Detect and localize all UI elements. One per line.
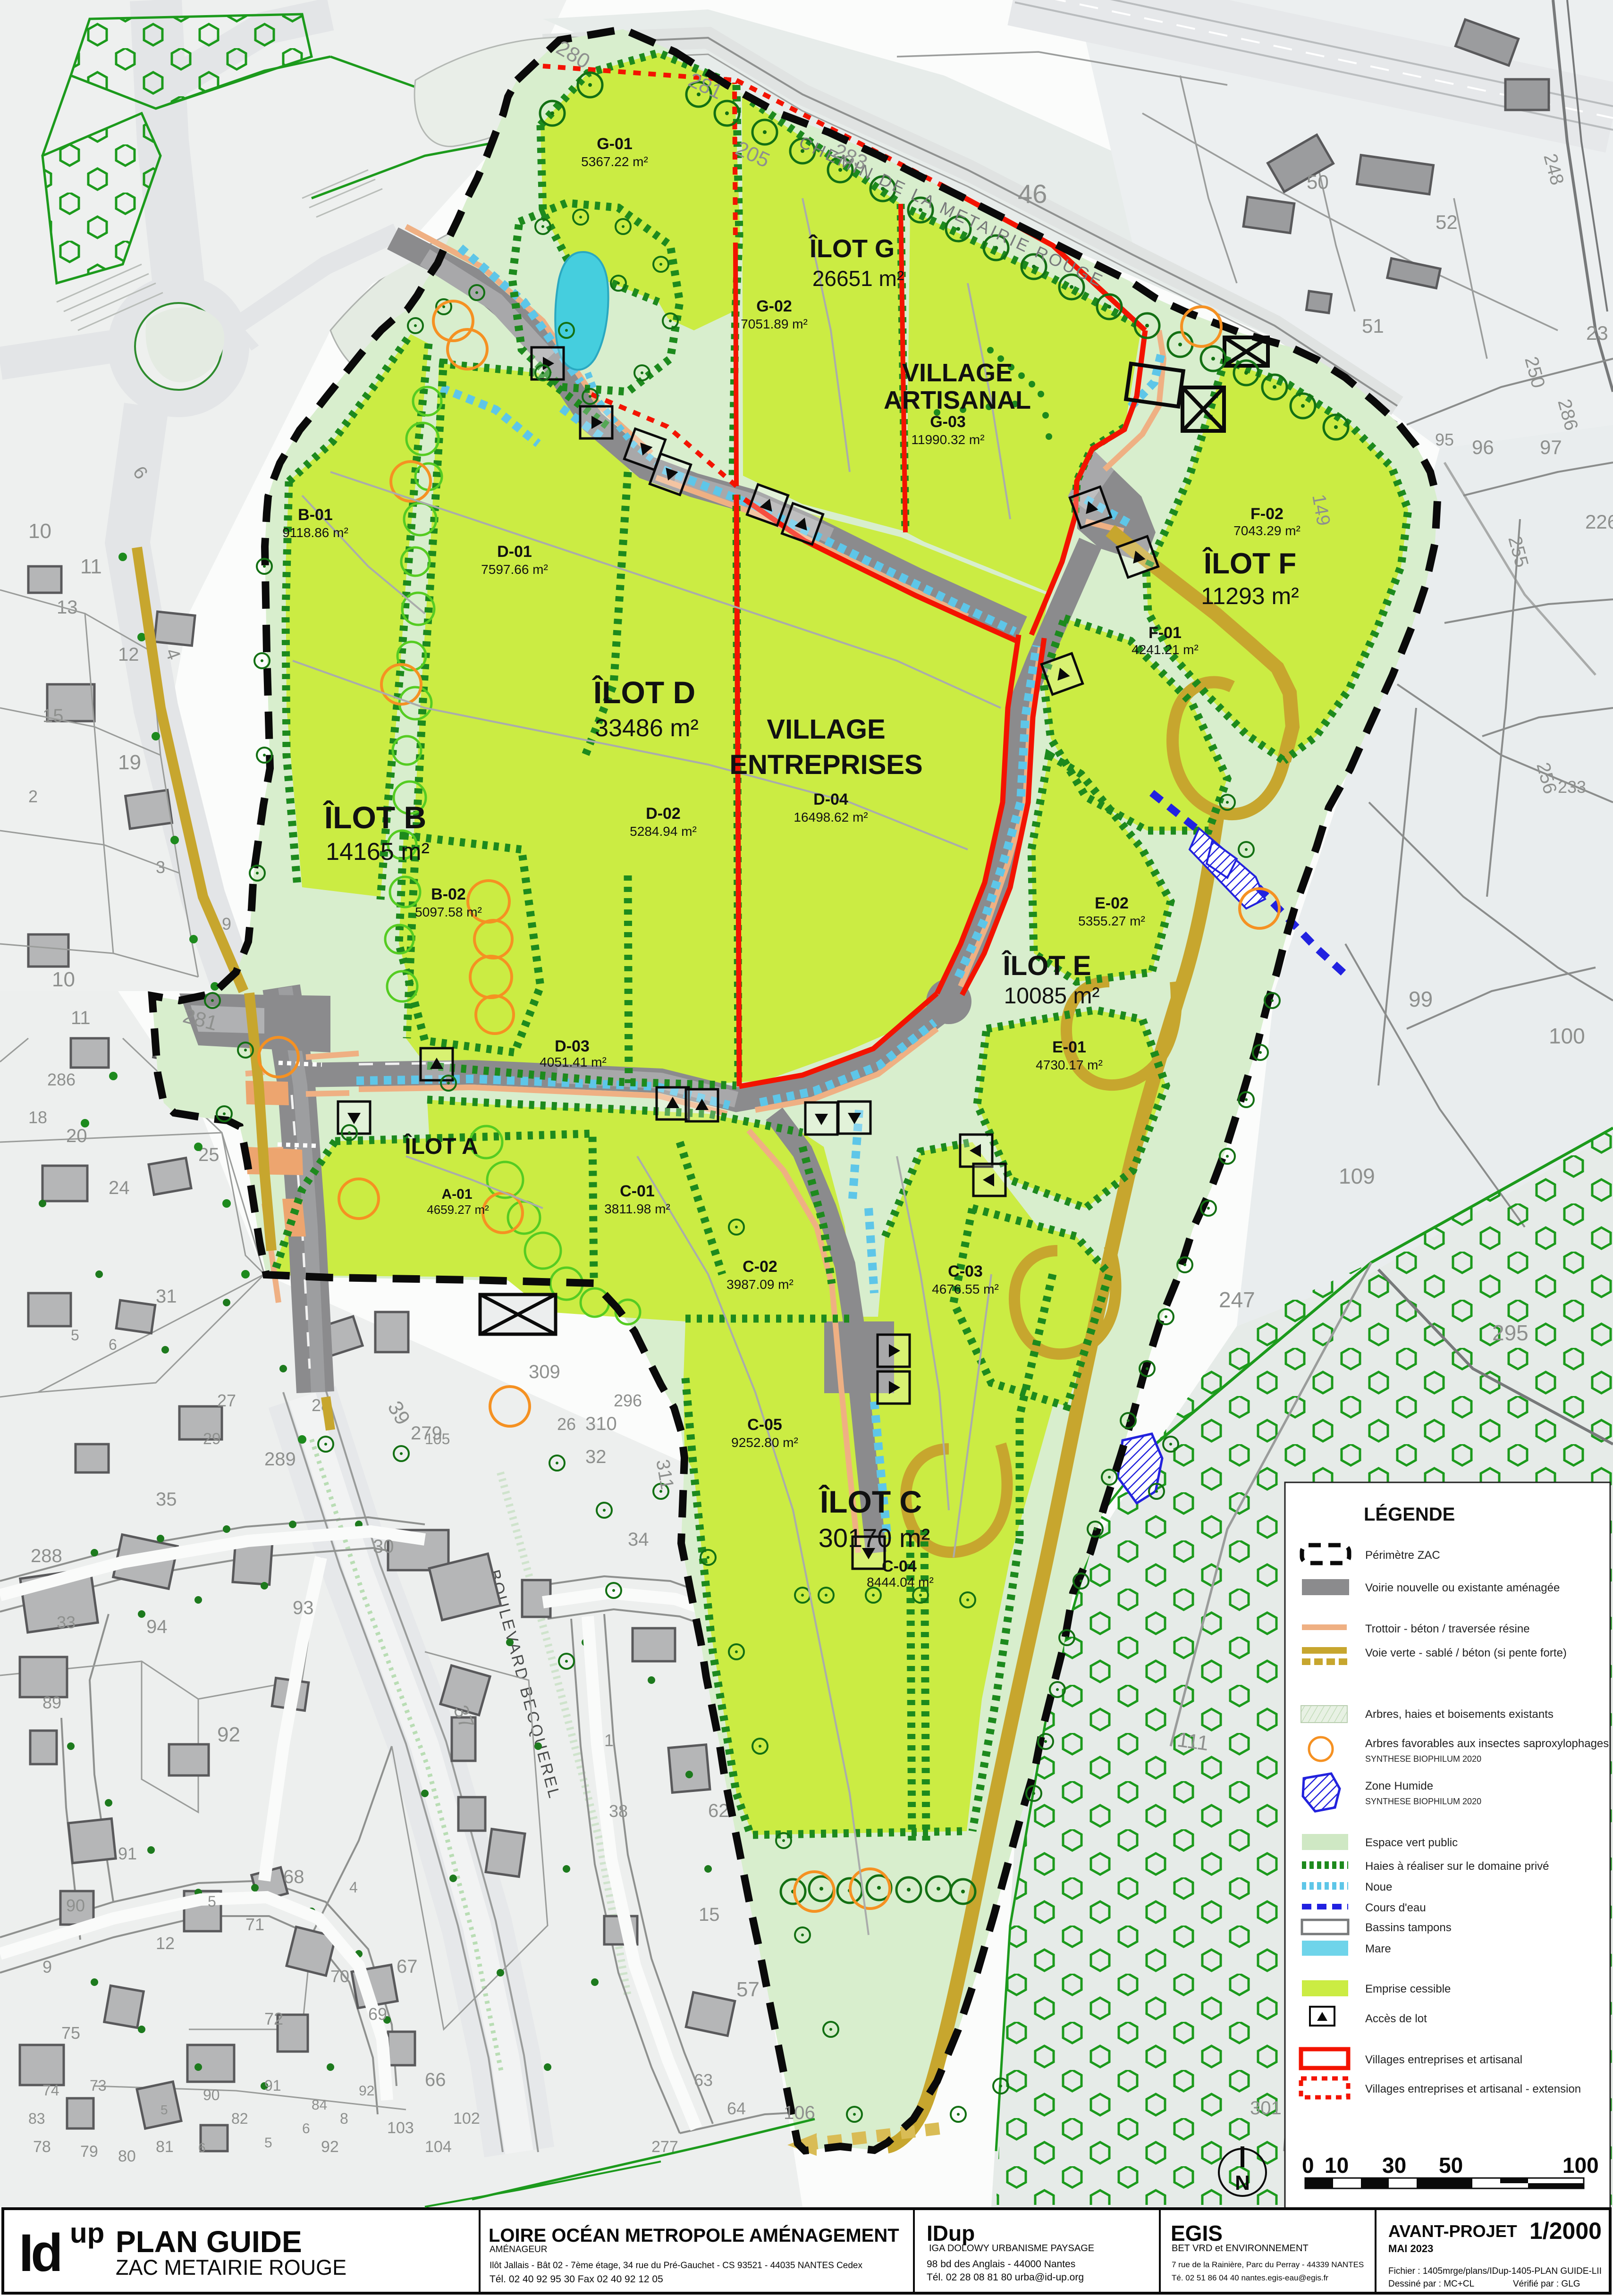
svg-text:PLAN GUIDE: PLAN GUIDE	[116, 2225, 302, 2259]
svg-text:33486 m²: 33486 m²	[595, 715, 699, 742]
svg-text:46: 46	[1018, 179, 1047, 209]
svg-text:9: 9	[42, 1957, 52, 1976]
svg-text:10: 10	[52, 968, 75, 991]
svg-text:288: 288	[31, 1546, 62, 1566]
svg-text:81: 81	[156, 2138, 174, 2156]
svg-text:D-03: D-03	[555, 1037, 590, 1055]
svg-text:51: 51	[1362, 315, 1384, 337]
svg-text:279: 279	[411, 1423, 442, 1444]
svg-text:289: 289	[264, 1449, 296, 1470]
svg-text:VILLAGE: VILLAGE	[767, 714, 885, 745]
svg-text:80: 80	[118, 2147, 136, 2165]
svg-text:C-02: C-02	[743, 1258, 777, 1276]
svg-text:26651 m²: 26651 m²	[812, 266, 904, 291]
svg-text:13: 13	[57, 597, 78, 618]
svg-text:68: 68	[283, 1867, 304, 1887]
svg-text:Voirie nouvelle ou existante a: Voirie nouvelle ou existante aménagée	[1365, 1581, 1560, 1594]
svg-text:Ilôt Jallais - Bât 02 - 7ème é: Ilôt Jallais - Bât 02 - 7ème étage, 34 r…	[490, 2261, 862, 2271]
svg-text:57: 57	[736, 1978, 760, 2001]
svg-text:5: 5	[160, 2103, 168, 2117]
svg-text:12: 12	[118, 644, 139, 665]
svg-text:301: 301	[1250, 2098, 1282, 2119]
svg-text:ENTREPRISES: ENTREPRISES	[729, 749, 922, 780]
svg-text:F-02: F-02	[1250, 505, 1284, 523]
svg-text:99: 99	[1409, 987, 1433, 1011]
svg-text:5367.22 m²: 5367.22 m²	[581, 154, 648, 169]
svg-text:5284.94 m²: 5284.94 m²	[630, 824, 697, 839]
svg-text:10: 10	[28, 520, 51, 543]
svg-text:E-02: E-02	[1095, 894, 1129, 912]
svg-text:14165 m²: 14165 m²	[326, 838, 430, 866]
svg-text:30: 30	[373, 1536, 394, 1557]
svg-text:104: 104	[425, 2138, 452, 2156]
svg-text:100: 100	[1549, 1024, 1585, 1048]
svg-text:ÎLOT G: ÎLOT G	[808, 234, 895, 263]
svg-text:52: 52	[1436, 211, 1458, 233]
svg-text:ÎLOT C: ÎLOT C	[819, 1484, 922, 1519]
svg-text:Accès de lot: Accès de lot	[1365, 2012, 1427, 2025]
svg-text:34: 34	[628, 1529, 649, 1550]
svg-text:70: 70	[330, 1967, 349, 1986]
svg-text:AMÉNAGEUR: AMÉNAGEUR	[490, 2245, 547, 2254]
svg-text:G-03: G-03	[930, 413, 966, 431]
svg-text:103: 103	[387, 2119, 414, 2137]
svg-text:5: 5	[264, 2135, 272, 2151]
svg-text:12: 12	[156, 1934, 175, 1953]
svg-text:Arbres, haies et boisements ex: Arbres, haies et boisements existants	[1365, 1708, 1554, 1721]
svg-text:30: 30	[1382, 2153, 1406, 2178]
svg-text:27: 27	[217, 1391, 236, 1410]
svg-text:MAI 2023: MAI 2023	[1388, 2243, 1433, 2254]
svg-text:G-01: G-01	[597, 135, 633, 153]
svg-text:D-04: D-04	[813, 791, 848, 808]
svg-text:109: 109	[1339, 1164, 1375, 1188]
svg-text:N: N	[1235, 2171, 1250, 2195]
svg-text:Zone Humide: Zone Humide	[1365, 1780, 1433, 1792]
svg-text:8444.04 m²: 8444.04 m²	[867, 1575, 934, 1590]
svg-text:ARTISANAL: ARTISANAL	[884, 386, 1031, 414]
svg-text:233: 233	[1558, 777, 1586, 797]
svg-text:78: 78	[33, 2138, 51, 2156]
svg-text:Noue: Noue	[1365, 1881, 1392, 1893]
svg-text:9118.86 m²: 9118.86 m²	[282, 525, 348, 540]
svg-text:111: 111	[1176, 1728, 1210, 1755]
svg-text:BET VRD et ENVIRONNEMENT: BET VRD et ENVIRONNEMENT	[1172, 2243, 1309, 2254]
svg-text:ZAC METAIRIE ROUGE: ZAC METAIRIE ROUGE	[116, 2255, 346, 2279]
svg-text:Tél. 02 28 08 81 80 urba@id: Tél. 02 28 08 81 80 urba@id-up.org	[927, 2272, 1084, 2283]
svg-text:5355.27 m²: 5355.27 m²	[1078, 914, 1145, 928]
svg-text:IDup: IDup	[927, 2221, 975, 2246]
svg-text:247: 247	[1219, 1287, 1255, 1312]
svg-text:4659.27 m²: 4659.27 m²	[427, 1203, 489, 1217]
svg-text:Villages entreprises et artisa: Villages entreprises et artisanal - exte…	[1365, 2083, 1581, 2095]
svg-text:9252.80 m²: 9252.80 m²	[731, 1435, 798, 1450]
svg-text:38: 38	[609, 1801, 628, 1821]
svg-text:7043.29 m²: 7043.29 m²	[1233, 523, 1301, 538]
svg-text:1: 1	[604, 1731, 614, 1750]
svg-text:Id: Id	[19, 2223, 60, 2282]
svg-text:90: 90	[203, 2086, 220, 2103]
svg-text:11293 m²: 11293 m²	[1201, 583, 1299, 609]
svg-text:Cours d'eau: Cours d'eau	[1365, 1901, 1426, 1914]
svg-text:69: 69	[368, 2004, 387, 2024]
svg-text:11: 11	[71, 1008, 91, 1028]
svg-text:SYNTHESE BIOPHILUM 2020: SYNTHESE BIOPHILUM 2020	[1365, 1797, 1481, 1806]
svg-text:Voie verte - sablé / béton (si: Voie verte - sablé / béton (si pente for…	[1365, 1647, 1567, 1659]
svg-text:Villages entreprises et artisa: Villages entreprises et artisanal	[1365, 2053, 1522, 2066]
svg-text:95: 95	[1435, 430, 1454, 449]
svg-text:4676.55 m²: 4676.55 m²	[932, 1282, 999, 1296]
svg-text:ÎLOT F: ÎLOT F	[1202, 547, 1296, 580]
svg-text:Haies à réaliser sur le domain: Haies à réaliser sur le domaine privé	[1365, 1860, 1549, 1873]
svg-text:5097.58 m²: 5097.58 m²	[415, 905, 482, 919]
svg-text:19: 19	[118, 751, 141, 774]
svg-text:92: 92	[217, 1723, 240, 1746]
svg-text:23: 23	[1586, 322, 1608, 344]
svg-text:Bassins tampons: Bassins tampons	[1365, 1921, 1452, 1934]
svg-text:Périmètre ZAC: Périmètre ZAC	[1365, 1549, 1440, 1562]
svg-text:286: 286	[47, 1070, 76, 1089]
svg-text:3811.98 m²: 3811.98 m²	[604, 1202, 670, 1216]
svg-text:7051.89 m²: 7051.89 m²	[741, 317, 808, 331]
svg-text:LÉGENDE: LÉGENDE	[1364, 1504, 1455, 1525]
svg-text:Tél. 02 40 92 95 30 Fax 02: Tél. 02 40 92 95 30 Fax 02 40 92 12 05	[490, 2274, 663, 2285]
svg-text:Emprise cessible: Emprise cessible	[1365, 1983, 1451, 1995]
svg-text:9: 9	[222, 914, 231, 934]
svg-text:Dessiné par : MC+CL: Dessiné par : MC+CL	[1388, 2279, 1474, 2289]
svg-text:ÎLOT A: ÎLOT A	[404, 1133, 478, 1159]
svg-text:C-05: C-05	[747, 1416, 782, 1434]
svg-text:310: 310	[585, 1413, 617, 1434]
svg-text:15: 15	[699, 1904, 720, 1925]
svg-text:75: 75	[61, 2023, 80, 2043]
svg-text:B-02: B-02	[431, 885, 466, 903]
svg-text:79: 79	[80, 2143, 98, 2161]
svg-text:up: up	[70, 2217, 104, 2249]
svg-text:D-01: D-01	[497, 543, 532, 561]
svg-text:C-01: C-01	[620, 1182, 655, 1200]
svg-text:66: 66	[425, 2069, 446, 2090]
svg-text:A-01: A-01	[441, 1186, 472, 1202]
svg-text:91: 91	[264, 2077, 281, 2094]
svg-text:84: 84	[312, 2097, 327, 2113]
svg-text:102: 102	[453, 2110, 480, 2128]
svg-text:32: 32	[585, 1447, 607, 1467]
svg-text:64: 64	[727, 2099, 746, 2118]
svg-text:4051.41 m²: 4051.41 m²	[540, 1055, 607, 1069]
svg-text:8: 8	[340, 2110, 348, 2127]
svg-text:ÎLOT E: ÎLOT E	[1002, 950, 1091, 981]
svg-text:10: 10	[1325, 2153, 1349, 2178]
svg-text:4241.21 m²: 4241.21 m²	[1132, 642, 1199, 657]
svg-text:16498.62 m²: 16498.62 m²	[794, 810, 868, 824]
svg-text:D-02: D-02	[646, 805, 681, 823]
svg-text:0: 0	[1302, 2153, 1314, 2178]
svg-text:295: 295	[1492, 1320, 1529, 1345]
svg-text:5: 5	[208, 1893, 216, 1910]
svg-text:309: 309	[529, 1362, 560, 1382]
svg-text:31: 31	[156, 1286, 177, 1307]
svg-text:4: 4	[349, 1879, 358, 1896]
svg-text:15: 15	[42, 706, 64, 726]
svg-text:63: 63	[694, 2070, 713, 2090]
svg-text:5: 5	[71, 1327, 79, 1344]
svg-text:EGIS: EGIS	[1171, 2221, 1223, 2246]
svg-text:90: 90	[66, 1896, 85, 1915]
svg-text:50: 50	[1307, 171, 1329, 193]
svg-text:Mare: Mare	[1365, 1943, 1391, 1955]
svg-text:74: 74	[42, 2082, 59, 2099]
svg-text:30170 m²: 30170 m²	[819, 1523, 930, 1553]
svg-text:20: 20	[66, 1126, 87, 1146]
svg-text:11990.32 m²: 11990.32 m²	[911, 432, 984, 447]
svg-text:6: 6	[109, 1336, 117, 1353]
svg-text:50: 50	[1439, 2153, 1463, 2178]
svg-text:72: 72	[264, 2009, 283, 2028]
svg-text:62: 62	[708, 1800, 729, 1821]
svg-text:96: 96	[1472, 436, 1494, 458]
svg-text:VILLAGE: VILLAGE	[902, 359, 1013, 387]
svg-text:93: 93	[293, 1598, 314, 1618]
svg-text:C-03: C-03	[948, 1262, 983, 1280]
svg-text:67: 67	[397, 1956, 418, 1977]
svg-text:6: 6	[302, 2121, 310, 2136]
svg-text:Arbres favorables aux insectes: Arbres favorables aux insectes saproxylo…	[1365, 1737, 1609, 1750]
svg-text:AVANT-PROJET: AVANT-PROJET	[1388, 2221, 1517, 2241]
svg-text:98 bd des Anglais - 44000 Nant: 98 bd des Anglais - 44000 Nantes	[927, 2259, 1075, 2270]
svg-text:33: 33	[57, 1613, 76, 1632]
svg-text:Fichier : 1405mrge/plans/IDup-: Fichier : 1405mrge/plans/IDup-1405-PLAN …	[1388, 2266, 1602, 2276]
svg-text:89: 89	[42, 1693, 61, 1712]
svg-text:226: 226	[1585, 511, 1613, 533]
svg-text:35: 35	[156, 1489, 177, 1510]
svg-text:E-01: E-01	[1052, 1038, 1086, 1056]
svg-text:F-01: F-01	[1149, 624, 1182, 642]
svg-text:LOIRE OCÉAN METROPOLE AMÉNAGEM: LOIRE OCÉAN METROPOLE AMÉNAGEMENT	[489, 2225, 899, 2246]
svg-text:100: 100	[1562, 2153, 1599, 2178]
svg-text:296: 296	[614, 1391, 642, 1410]
svg-text:92: 92	[359, 2083, 374, 2099]
svg-text:10085 m²: 10085 m²	[1004, 984, 1100, 1009]
svg-text:26: 26	[557, 1414, 576, 1434]
svg-text:6: 6	[198, 2140, 206, 2155]
svg-text:4730.17 m²: 4730.17 m²	[1036, 1058, 1103, 1072]
svg-text:24: 24	[109, 1177, 130, 1198]
svg-text:C-04: C-04	[882, 1557, 917, 1575]
svg-text:97: 97	[1540, 436, 1562, 458]
svg-text:11: 11	[80, 555, 102, 578]
svg-text:G-02: G-02	[756, 297, 792, 315]
svg-text:3987.09 m²: 3987.09 m²	[726, 1277, 794, 1292]
svg-text:2: 2	[28, 787, 38, 806]
svg-text:7 rue de la Rainière, Parc du: 7 rue de la Rainière, Parc du Perray - 4…	[1172, 2260, 1364, 2269]
svg-text:ÎLOT D: ÎLOT D	[592, 675, 695, 710]
svg-text:73: 73	[90, 2077, 107, 2094]
svg-text:Trottoir - béton / traversée: Trottoir - béton / traversée résine	[1365, 1623, 1530, 1635]
svg-text:Espace vert public: Espace vert public	[1365, 1836, 1458, 1849]
svg-text:1/2000: 1/2000	[1529, 2218, 1602, 2244]
svg-text:92: 92	[321, 2138, 339, 2156]
svg-text:94: 94	[146, 1616, 168, 1637]
svg-text:ÎLOT B: ÎLOT B	[323, 800, 426, 835]
svg-text:29: 29	[203, 1430, 221, 1448]
svg-text:82: 82	[231, 2110, 248, 2127]
svg-text:Té. 02 51 86 04 40 nantes.e: Té. 02 51 86 04 40 nantes.egis-eau@egis.…	[1172, 2273, 1328, 2282]
svg-text:91: 91	[118, 1844, 137, 1863]
svg-text:B-01: B-01	[298, 506, 333, 524]
svg-text:Vérifié par : GLG: Vérifié par : GLG	[1513, 2279, 1580, 2289]
svg-text:71: 71	[245, 1915, 264, 1934]
svg-text:7597.66 m²: 7597.66 m²	[481, 562, 548, 577]
svg-text:18: 18	[28, 1108, 47, 1127]
svg-text:83: 83	[28, 2110, 45, 2127]
svg-text:SYNTHESE BIOPHILUM 2020: SYNTHESE BIOPHILUM 2020	[1365, 1754, 1481, 1764]
svg-text:IGA DOLOWY URBANISME PAYSAGE: IGA DOLOWY URBANISME PAYSAGE	[929, 2243, 1094, 2254]
